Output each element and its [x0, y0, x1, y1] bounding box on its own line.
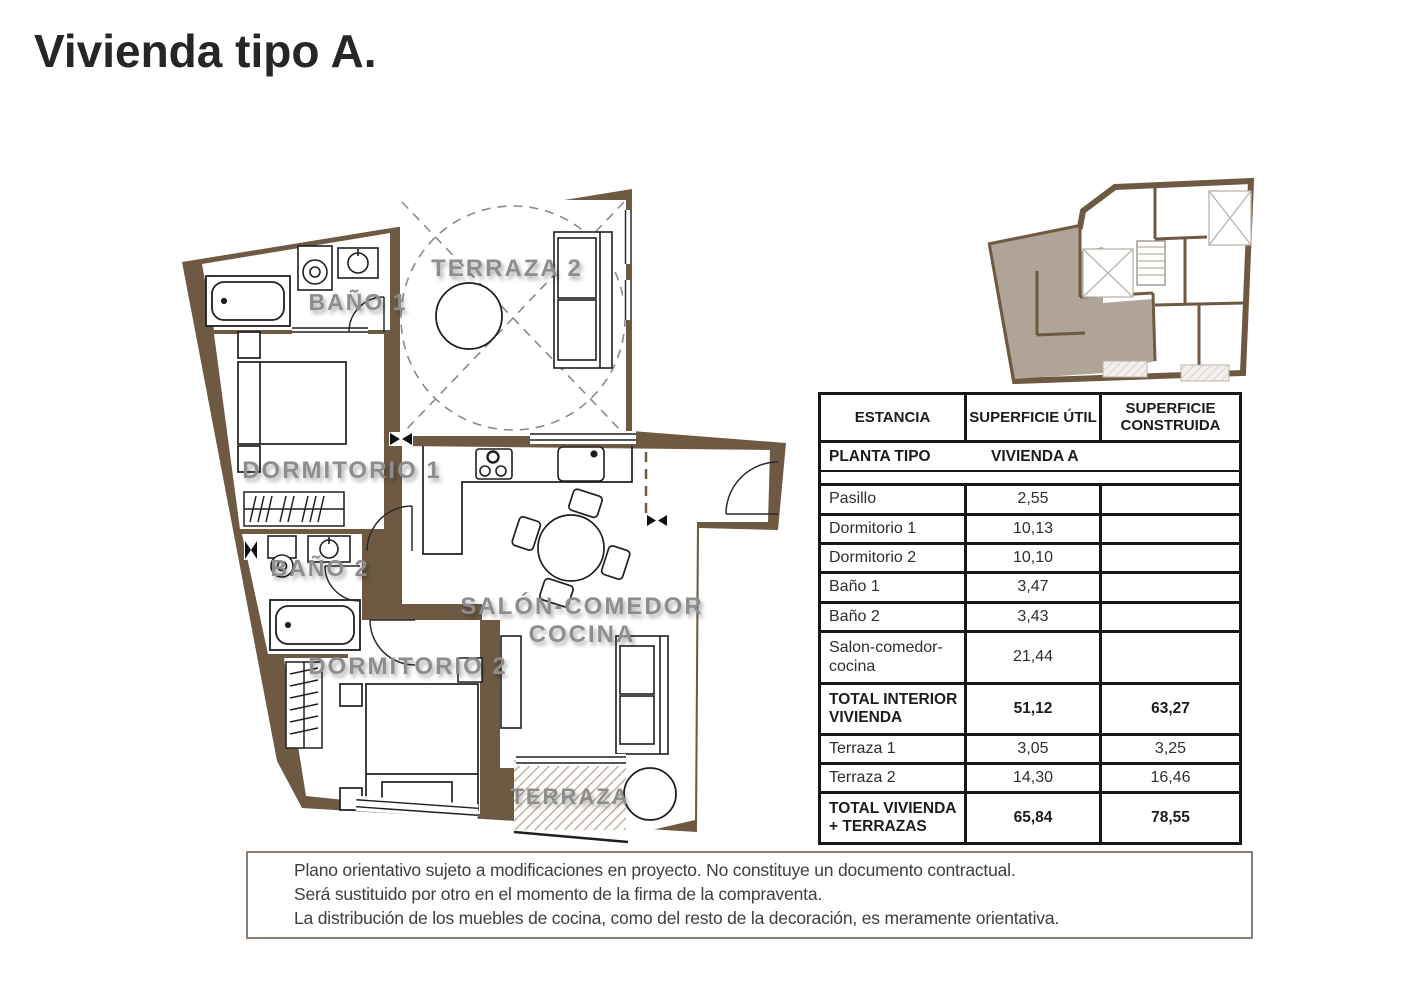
table-header-row: ESTANCIA SUPERFICIE ÚTIL SUPERFICIE CONS… [820, 394, 1241, 442]
cell-util: 65,84 [966, 793, 1101, 844]
areas-table: ESTANCIA SUPERFICIE ÚTIL SUPERFICIE CONS… [818, 392, 1242, 845]
cell-estancia: Baño 2 [820, 602, 966, 631]
table-row-total-interior: TOTAL INTERIOR VIVIENDA 51,12 63,27 [820, 684, 1241, 735]
table-row: Terraza 2 14,30 16,46 [820, 764, 1241, 793]
cell-construida [1101, 602, 1241, 631]
header-superficie-util: SUPERFICIE ÚTIL [966, 394, 1101, 442]
table-row-total-vivienda: TOTAL VIVIENDA + TERRAZAS 65,84 78,55 [820, 793, 1241, 844]
key-plan [985, 174, 1257, 390]
sink1-icon [338, 248, 378, 278]
cell-estancia: TOTAL INTERIOR VIVIENDA [820, 684, 966, 735]
bathtub2-icon [270, 600, 360, 650]
label-salon-comedor: SALÓN-COMEDOR [460, 592, 703, 620]
cell-estancia: Terraza 2 [820, 764, 966, 793]
cell-construida: 3,25 [1101, 734, 1241, 763]
cell-estancia: Pasillo [820, 485, 966, 514]
table-row: Dormitorio 2 10,10 [820, 544, 1241, 573]
terraza-railing [514, 832, 628, 842]
label-bano-2: BAÑO 2 [271, 554, 370, 581]
terraza2-table-icon [436, 283, 502, 349]
cell-construida: 78,55 [1101, 793, 1241, 844]
cell-util: 14,30 [966, 764, 1101, 793]
page: Vivienda tipo A. [0, 0, 1418, 982]
table-row: Dormitorio 1 10,13 [820, 514, 1241, 543]
planta-tipo-label: PLANTA TIPO [829, 448, 977, 466]
hob-icon [476, 449, 512, 479]
cell-util: 10,10 [966, 544, 1101, 573]
cell-util: 21,44 [966, 632, 1101, 684]
cell-util: 3,47 [966, 573, 1101, 602]
floor-plan: TERRAZA 2 BAÑO 1 DORMITORIO 1 BAÑO 2 DOR… [180, 184, 792, 846]
salon-sofa-icon [616, 636, 668, 754]
label-cocina: COCINA [529, 621, 636, 648]
cell-util: 51,12 [966, 684, 1101, 735]
page-title: Vivienda tipo A. [34, 24, 377, 78]
table-row: Baño 2 3,43 [820, 602, 1241, 631]
disclaimer-line: Será sustituido por otro en el momento d… [294, 882, 1241, 906]
cell-estancia: Dormitorio 2 [820, 544, 966, 573]
table-row: Pasillo 2,55 [820, 485, 1241, 514]
cell-construida [1101, 544, 1241, 573]
cell-construida [1101, 514, 1241, 543]
cell-estancia: Salon-comedor-cocina [820, 632, 966, 684]
vivienda-a-label: VIVIENDA A [977, 448, 1079, 466]
cell-construida [1101, 485, 1241, 514]
bathtub1-icon [206, 276, 290, 326]
cell-construida: 16,46 [1101, 764, 1241, 793]
terraza-table-icon [624, 768, 676, 820]
cell-util: 10,13 [966, 514, 1101, 543]
wardrobe1-icon [244, 492, 344, 526]
header-superficie-construida: SUPERFICIE CONSTRUIDA [1101, 394, 1241, 442]
disclaimer-line: La distribución de los muebles de cocina… [294, 906, 1241, 930]
cell-util: 3,43 [966, 602, 1101, 631]
table-row: Baño 1 3,47 [820, 573, 1241, 602]
table-row: Salon-comedor-cocina 21,44 [820, 632, 1241, 684]
disclaimer-line: Plano orientativo sujeto a modificacione… [294, 858, 1241, 882]
cell-estancia: Baño 1 [820, 573, 966, 602]
terraza2-sofa-icon [554, 232, 612, 368]
cell-util: 2,55 [966, 485, 1101, 514]
label-terraza-2: TERRAZA 2 [431, 255, 583, 282]
label-dormitorio-2: DORMITORIO 2 [308, 653, 508, 680]
staircase-icon [1137, 241, 1165, 285]
cell-util: 3,05 [966, 734, 1101, 763]
table-spacer-row [820, 471, 1241, 485]
table-row: Terraza 1 3,05 3,25 [820, 734, 1241, 763]
table-subheader-row: PLANTA TIPO VIVIENDA A [820, 441, 1241, 471]
cell-construida [1101, 573, 1241, 602]
cell-construida [1101, 632, 1241, 684]
kitchen-sink-icon [558, 447, 604, 481]
label-terraza: TERRAZA [510, 784, 629, 809]
toilet1-icon [298, 246, 332, 290]
cell-construida: 63,27 [1101, 684, 1241, 735]
cell-estancia: Terraza 1 [820, 734, 966, 763]
label-bano-1: BAÑO 1 [309, 288, 408, 315]
header-estancia: ESTANCIA [820, 394, 966, 442]
sideboard-icon [501, 636, 521, 728]
disclaimer-box: Plano orientativo sujeto a modificacione… [246, 851, 1253, 939]
cell-estancia: Dormitorio 1 [820, 514, 966, 543]
label-dormitorio-1: DORMITORIO 1 [242, 457, 442, 484]
cell-estancia: TOTAL VIVIENDA + TERRAZAS [820, 793, 966, 844]
